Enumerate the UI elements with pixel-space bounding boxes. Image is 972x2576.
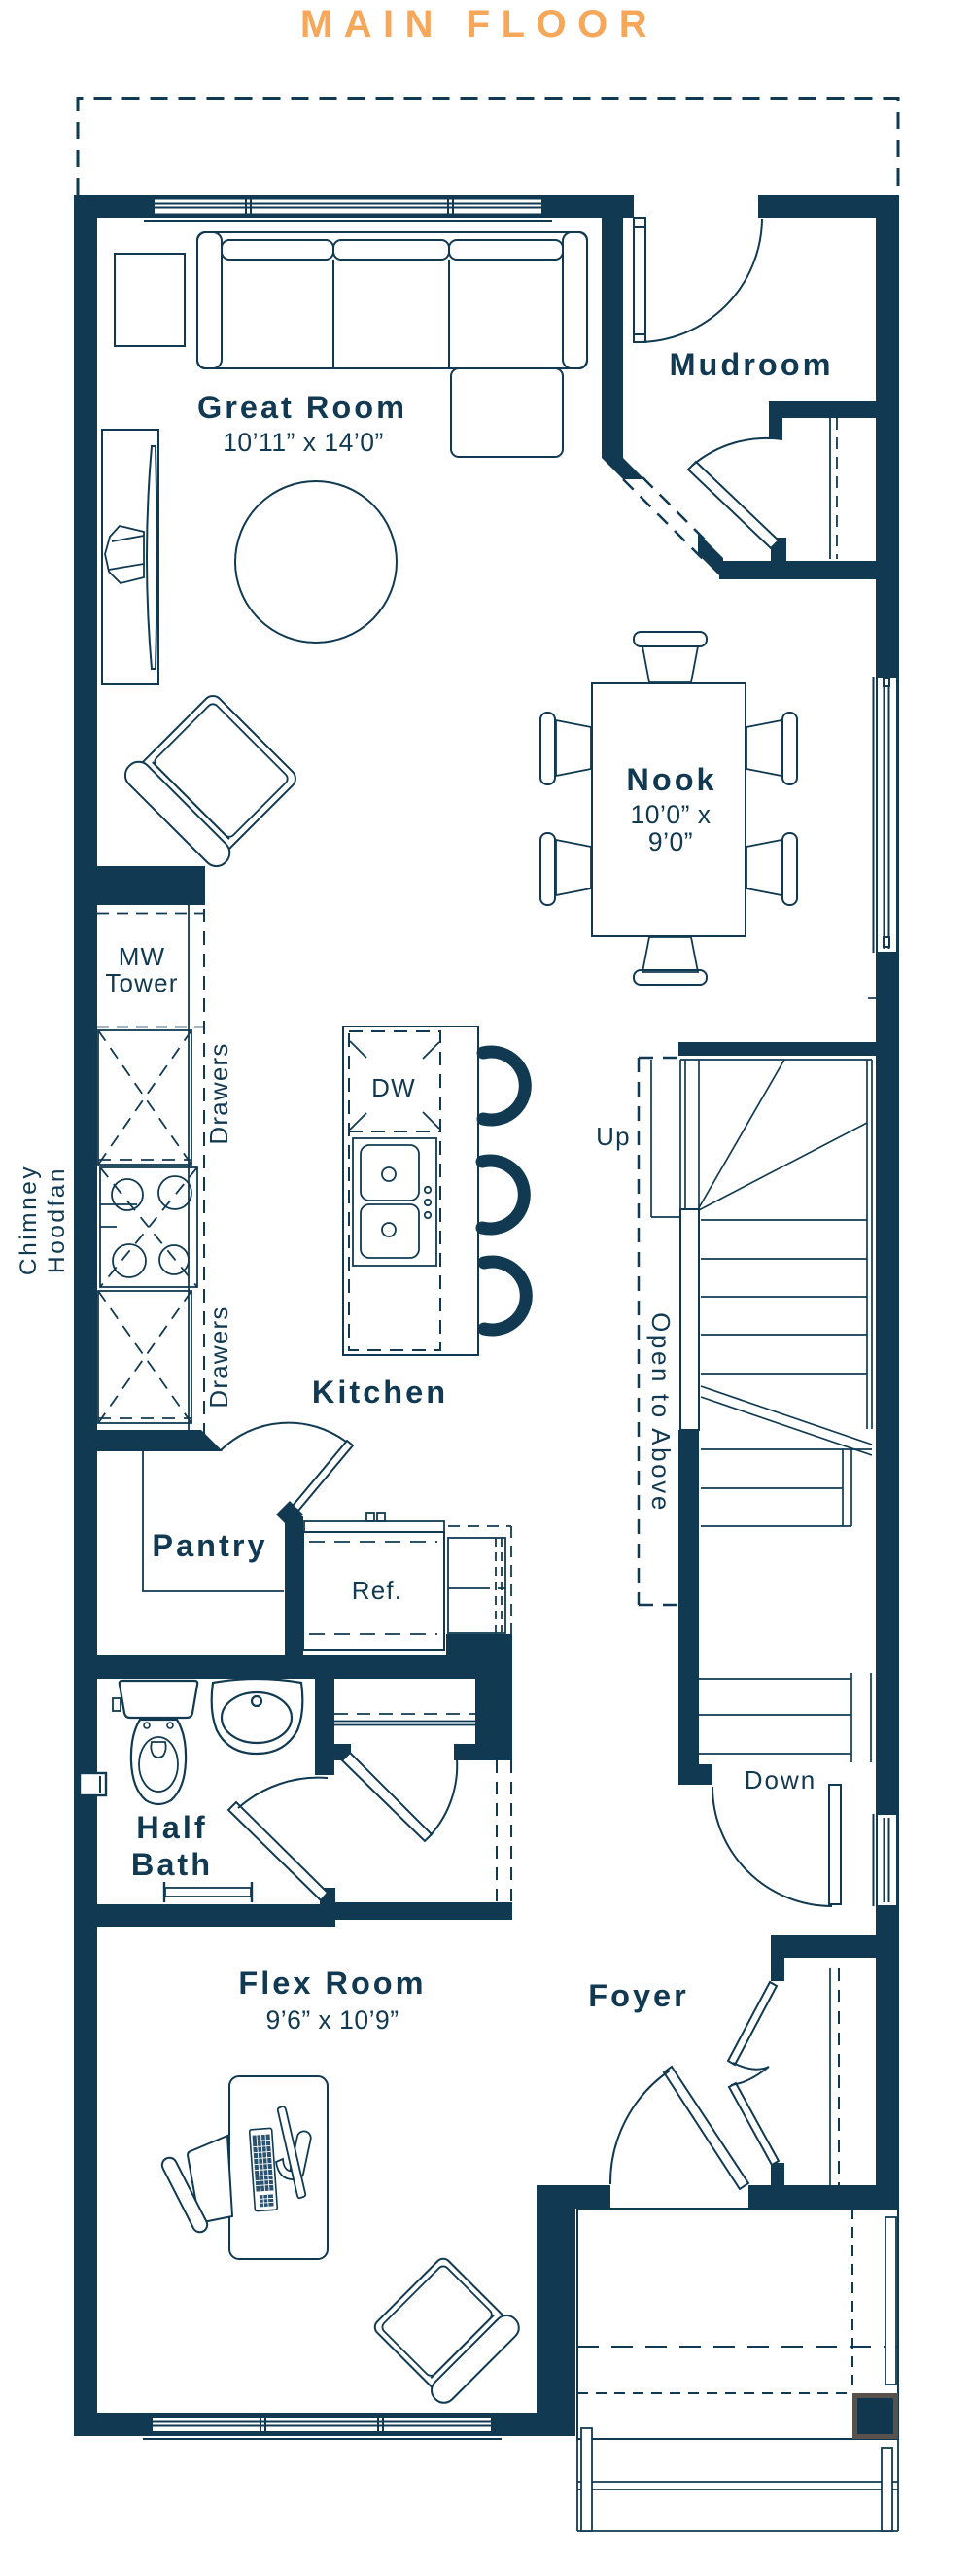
svg-text:Mudroom: Mudroom <box>669 347 833 382</box>
svg-text:Hoodfan: Hoodfan <box>44 1166 70 1273</box>
svg-text:Open to Above: Open to Above <box>646 1312 676 1513</box>
svg-text:Foyer: Foyer <box>588 1978 689 2013</box>
svg-text:MAIN FLOOR: MAIN FLOOR <box>300 3 658 46</box>
svg-text:Great Room: Great Room <box>197 390 407 425</box>
svg-text:Bath: Bath <box>131 1847 213 1882</box>
svg-text:10’0” x: 10’0” x <box>630 800 711 829</box>
svg-text:Kitchen: Kitchen <box>312 1375 448 1410</box>
svg-text:10’11” x 14’0”: 10’11” x 14’0” <box>223 428 384 457</box>
svg-text:Drawers: Drawers <box>204 1305 233 1408</box>
svg-text:Flex Room: Flex Room <box>238 1966 426 2001</box>
svg-text:DW: DW <box>371 1073 416 1102</box>
svg-text:Drawers: Drawers <box>204 1042 233 1144</box>
svg-text:Up: Up <box>596 1122 631 1151</box>
svg-text:Half: Half <box>136 1810 207 1845</box>
svg-text:Tower: Tower <box>105 968 178 997</box>
svg-text:9’0”: 9’0” <box>648 827 693 856</box>
svg-text:Chimney: Chimney <box>16 1165 42 1275</box>
svg-text:Ref.: Ref. <box>352 1576 402 1605</box>
svg-text:Nook: Nook <box>626 762 716 797</box>
svg-text:MW: MW <box>119 942 166 971</box>
svg-text:Pantry: Pantry <box>152 1528 267 1563</box>
svg-text:Down: Down <box>745 1765 816 1794</box>
svg-text:9’6” x 10’9”: 9’6” x 10’9” <box>265 2005 399 2035</box>
